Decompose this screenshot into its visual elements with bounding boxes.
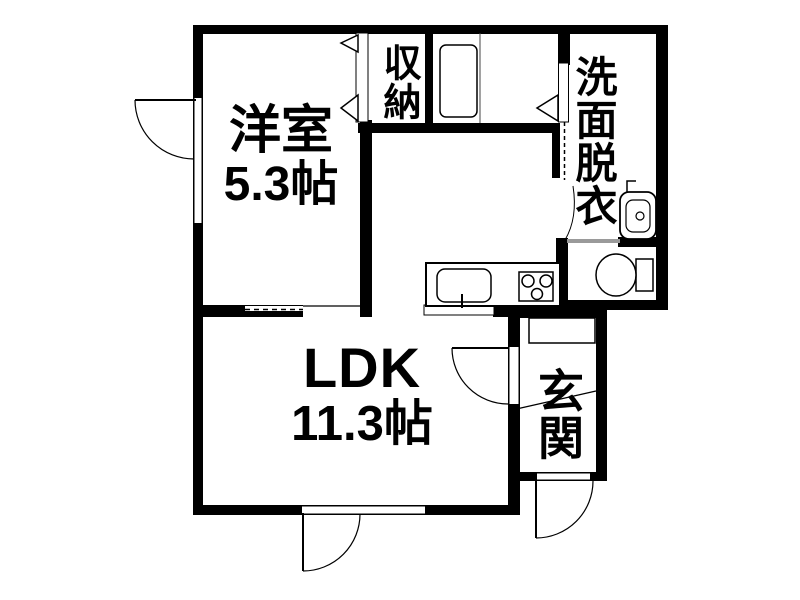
- door-arc-entrance: [536, 481, 593, 538]
- kitchen-counter: [426, 263, 560, 308]
- ldk-name: LDK: [272, 338, 452, 398]
- wall-right: [656, 25, 668, 310]
- washroom-door-triangle: [537, 95, 558, 121]
- label-closet: 収納: [372, 36, 418, 128]
- opening-entrance-door: [537, 474, 590, 480]
- door-arc-ldk-terrace: [303, 514, 360, 571]
- label-western-room: 洋室 5.3帖: [200, 103, 362, 211]
- washbasin-drain: [636, 212, 644, 220]
- opening-ldk-genkan-door: [510, 347, 519, 404]
- washing-machine-pan-icon: [440, 45, 477, 117]
- washbasin-icon: [620, 181, 656, 239]
- western-room-size: 5.3帖: [200, 159, 362, 211]
- floorplan-canvas: 洋室 5.3帖 LDK 11.3帖 収納 洗面脱衣 玄関: [0, 0, 800, 600]
- stove-burner: [522, 275, 534, 287]
- stove-burner: [532, 289, 543, 300]
- label-ldk: LDK 11.3帖: [272, 338, 452, 451]
- wall-genkan-left: [508, 310, 520, 515]
- door-arc-western-exterior: [135, 100, 194, 159]
- label-entrance: 玄関: [532, 359, 582, 469]
- wall-closet-right: [425, 25, 433, 125]
- wall-toilet-bottom: [556, 300, 668, 310]
- toilet-bowl: [596, 254, 636, 296]
- toilet-tank: [636, 259, 653, 291]
- closet-folding-door-triangle-top: [341, 35, 358, 52]
- toilet-icon: [596, 254, 653, 296]
- western-room-name: 洋室: [200, 103, 362, 159]
- wall-utility-right-top: [558, 25, 570, 65]
- label-washroom: 洗面脱衣: [570, 40, 616, 242]
- wall-genkan-right: [596, 310, 607, 481]
- stove-burner: [540, 275, 552, 287]
- door-arc-ldk-genkan: [452, 348, 508, 404]
- shoe-cabinet-icon: [529, 318, 595, 343]
- washroom-upper-door-panel: [559, 63, 569, 122]
- wall-genkan-top: [512, 310, 607, 318]
- wall-washroom-slide-panel: [552, 133, 560, 178]
- kitchen-sink-icon: [437, 269, 491, 302]
- opening-ldk-terrace: [302, 507, 425, 514]
- ldk-size: 11.3帖: [272, 398, 452, 451]
